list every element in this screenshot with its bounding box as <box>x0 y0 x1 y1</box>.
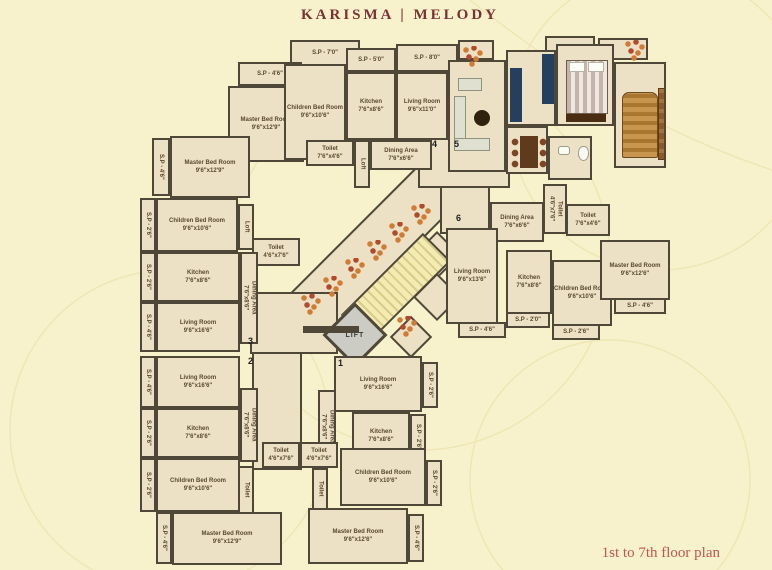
room-label: Children Bed Room <box>170 478 226 485</box>
dining-table <box>520 136 538 168</box>
room-dims: 7'6"x8'6" <box>516 283 541 290</box>
room-dining-top: Dining Area 7'6"x6'6" <box>370 140 432 170</box>
sp-label: S.P - 4'6" <box>627 303 653 309</box>
room-dims: 9'6"x11'0" <box>408 107 436 114</box>
room-kitchen-flat3: Kitchen 7'6"x8'6" <box>156 252 240 302</box>
room-toilet-flat6-a: Toilet 4'6"x7'6" <box>543 184 567 234</box>
sp-label: S.P - 4'6" <box>158 154 164 180</box>
lobby-flat6 <box>440 186 490 234</box>
room-dims: 9'6"x12'9" <box>213 539 242 546</box>
sp-label: S.P - 5'0" <box>358 57 384 63</box>
room-label: Toilet <box>268 245 284 252</box>
room-dining-showflat <box>506 126 548 174</box>
armchair <box>458 78 482 91</box>
room-living-showflat <box>448 60 506 172</box>
room-children-bed-flat2: Children Bed Room 9'6"x10'6" <box>156 458 240 512</box>
room-toilet-showflat <box>548 136 592 180</box>
room-label: Kitchen <box>360 99 382 106</box>
room-living-flat2: Living Room 9'6"x16'6" <box>156 356 240 408</box>
room-dims: 7'6"x8'6" <box>368 437 393 444</box>
room-label: Living Room <box>404 99 440 106</box>
round-table <box>474 110 490 126</box>
room-dims: 7'6"x8'6" <box>242 285 249 310</box>
room-dims: 9'6"x12'6" <box>621 271 650 278</box>
room-living-flat6: Living Room 9'6"x13'6" <box>446 228 498 324</box>
room-label: Master Bed Room <box>609 263 660 270</box>
room-living-flat3: Living Room 9'6"x16'6" <box>156 302 240 352</box>
sp-label: S.P - 2'6" <box>563 329 589 335</box>
sp-label: S.P - 4'6" <box>145 369 151 395</box>
balcony-sp: S.P - 2'6" <box>140 252 156 302</box>
flat-number-3: 3 <box>248 336 253 346</box>
sofa <box>454 138 490 151</box>
room-dims: 9'6"x10'6" <box>568 294 597 301</box>
room-dims: 7'6"x8'6" <box>185 434 210 441</box>
room-living-flat1: Living Room 9'6"x16'6" <box>334 356 422 412</box>
room-dims: 9'6"x12'9" <box>196 168 225 175</box>
balcony-sp: S.P - 4'6" <box>152 138 170 196</box>
room-label: Master Bed Room <box>201 531 252 538</box>
room-dims: 4'6"x7'6" <box>268 456 293 463</box>
flower-decor <box>322 276 344 298</box>
room-label: Living Room <box>180 320 216 327</box>
flat-number-1: 1 <box>338 358 343 368</box>
floor-plan-caption: 1st to 7th floor plan <box>602 545 720 562</box>
flower-decor <box>366 240 388 262</box>
wardrobe <box>658 88 666 160</box>
room-kitchen-top: Kitchen 7'6"x8'6" <box>346 72 396 140</box>
room-label: Kitchen <box>187 270 209 277</box>
room-toilet-flat2-a: Toilet 4'6"x7'6" <box>262 442 300 468</box>
room-dims: 7'6"x6'6" <box>504 223 529 230</box>
flat-number-2: 2 <box>248 356 253 366</box>
flower-decor <box>300 294 322 316</box>
balcony-sp: S.P - 2'6" <box>426 460 442 506</box>
balcony-sp: S.P - 4'6" <box>140 302 156 352</box>
room-label: Dining Area <box>328 410 335 443</box>
room-label: Dining Area <box>500 215 533 222</box>
balcony-sp: S.P - 2'0" <box>506 312 550 328</box>
room-label: Living Room <box>180 375 216 382</box>
sp-label: S.P - 2'6" <box>145 264 151 290</box>
room-dining-flat2: Dining Area 7'6"x8'6" <box>240 388 258 462</box>
kitchen-counter <box>542 54 554 104</box>
room-label: Toilet <box>311 448 327 455</box>
room-label: Toilet <box>273 448 289 455</box>
room-dims: 4'6"x7'6" <box>306 456 331 463</box>
sp-label: S.P - 2'6" <box>427 372 433 398</box>
room-label: Toilet <box>322 146 338 153</box>
room-kitchen-flat6: Kitchen 7'6"x8'6" <box>506 250 552 314</box>
flower-decor <box>396 316 418 338</box>
sp-label: S.P - 4'6" <box>413 525 419 551</box>
room-bedroom-showflat <box>556 44 614 126</box>
balcony-sp: S.P - 2'6" <box>140 458 156 512</box>
balcony-sp: S.P - 5'0" <box>346 48 396 72</box>
sp-label: S.P - 2'6" <box>145 212 151 238</box>
room-children-bed-flat3: Children Bed Room 9'6"x10'6" <box>156 198 238 252</box>
room-label: Master Bed Room <box>332 529 383 536</box>
room-children-bed-flat1: Children Bed Room 9'6"x10'6" <box>340 448 426 506</box>
room-label: Kitchen <box>370 429 392 436</box>
room-label: Children Bed Room <box>169 218 225 225</box>
wooden-bed <box>622 92 658 158</box>
room-dims: 9'6"x13'6" <box>458 277 487 284</box>
room-living-top: Living Room 9'6"x11'0" <box>396 72 448 140</box>
room-dims: 9'6"x10'6" <box>183 226 212 233</box>
flower-decor <box>410 204 432 226</box>
room-toilet-flat1-a: Toilet 4'6"x7'6" <box>300 442 338 468</box>
room-label: Kitchen <box>187 426 209 433</box>
room-toilet-flat2-b: Toilet <box>238 466 254 514</box>
room-label: Dining Area <box>384 148 417 155</box>
room-dims: 7'6"x4'6" <box>317 154 342 161</box>
room-dims: 4'6"x7'6" <box>263 253 288 260</box>
room-kitchen-showflat <box>506 50 556 126</box>
balcony-sp: S.P - 4'6" <box>458 322 506 338</box>
bed-footboard <box>566 114 606 122</box>
room-loft-top: Loft <box>354 140 370 188</box>
room-label: Children Bed Room <box>287 105 343 112</box>
balcony-sp: S.P - 2'6" <box>422 362 438 408</box>
room-label: Toilet <box>580 213 596 220</box>
flat-number-4: 4 <box>432 139 437 149</box>
room-dims: 4'6"x7'6" <box>548 196 555 221</box>
balcony-sp: S.P - 2'6" <box>552 324 600 340</box>
room-dims: 9'6"x12'6" <box>344 537 373 544</box>
pillow <box>569 62 585 72</box>
room-master-bed-flat6: Master Bed Room 9'6"x12'6" <box>600 240 670 300</box>
sp-label: S.P - 2'6" <box>415 424 421 450</box>
kitchen-counter <box>510 68 522 122</box>
room-dims: 7'6"x8'6" <box>242 412 249 437</box>
balcony-sp: S.P - 4'6" <box>408 514 424 562</box>
sink-fixture <box>558 146 570 155</box>
room-dining-flat3: Dining Area 7'6"x8'6" <box>240 252 258 344</box>
room-label: Loft <box>243 221 250 232</box>
room-dims: 9'6"x12'9" <box>252 125 281 132</box>
sp-label: S.P - 2'6" <box>431 470 437 496</box>
room-label: Kitchen <box>518 275 540 282</box>
lobby-left-wing <box>250 292 338 354</box>
room-label: Toilet <box>317 481 324 497</box>
flower-decor <box>388 222 410 244</box>
sp-label: S.P - 4'6" <box>161 525 167 551</box>
sofa <box>454 96 466 144</box>
sp-label: S.P - 2'6" <box>145 420 151 446</box>
balcony-sp: S.P - 4'6" <box>614 298 666 314</box>
pillow <box>588 62 604 72</box>
room-master-bed-flat3: Master Bed Room 9'6"x12'9" <box>170 136 250 198</box>
sp-label: S.P - 4'6" <box>145 314 151 340</box>
room-toilet-flat6-b: Toilet 7'6"x4'6" <box>566 204 610 236</box>
entrance-threshold <box>303 326 359 333</box>
room-bedroom2-showflat <box>614 62 666 168</box>
room-master-bed-flat2: Master Bed Room 9'6"x12'9" <box>172 512 282 565</box>
room-toilet-flat3: Toilet 4'6"x7'6" <box>252 238 300 266</box>
balcony-sp: S.P - 2'6" <box>140 408 156 458</box>
room-dims: 7'6"x8'6" <box>185 278 210 285</box>
flower-decor <box>344 258 366 280</box>
flat-number-5: 5 <box>454 139 459 149</box>
room-kitchen-flat2: Kitchen 7'6"x8'6" <box>156 408 240 458</box>
flower-decor <box>462 46 484 68</box>
balcony-sp: S.P - 2'6" <box>140 198 156 252</box>
room-label: Dining Area <box>250 408 257 441</box>
balcony-sp: S.P - 4'6" <box>156 512 172 564</box>
room-toilet-top: Toilet 7'6"x4'6" <box>306 140 354 166</box>
room-dims: 9'6"x16'6" <box>364 385 393 392</box>
room-label: Dining Area <box>250 281 257 314</box>
room-toilet-flat1-b: Toilet <box>312 468 328 510</box>
room-label: Toilet <box>556 201 563 217</box>
room-label: Toilet <box>243 482 250 498</box>
room-label: Master Bed Room <box>184 160 235 167</box>
flower-decor <box>624 40 646 62</box>
room-dims: 7'6"x8'6" <box>358 107 383 114</box>
room-dims: 9'6"x10'6" <box>301 113 330 120</box>
room-label: Living Room <box>360 377 396 384</box>
room-label: Children Bed Room <box>355 470 411 477</box>
sp-label: S.P - 4'6" <box>257 71 283 77</box>
room-dining-flat6: Dining Area 7'6"x6'6" <box>490 202 544 242</box>
room-dims: 9'6"x16'6" <box>184 328 213 335</box>
sp-label: S.P - 2'0" <box>515 317 541 323</box>
room-dims: 9'6"x10'6" <box>369 478 398 485</box>
room-dims: 7'6"x6'6" <box>388 156 413 163</box>
room-dims: 7'6"x4'6" <box>575 221 600 228</box>
flat-number-6: 6 <box>456 213 461 223</box>
room-dims: 9'6"x16'6" <box>184 383 213 390</box>
sp-label: S.P - 4'6" <box>469 327 495 333</box>
room-label: Living Room <box>454 269 490 276</box>
room-dims: 7'6"x8'6" <box>320 414 327 439</box>
sp-label: S.P - 2'6" <box>145 472 151 498</box>
room-dims: 9'6"x10'6" <box>184 486 213 493</box>
sp-label: S.P - 7'0" <box>312 50 338 56</box>
balcony-sp: S.P - 4'6" <box>140 356 156 408</box>
room-master-bed-flat1: Master Bed Room 9'6"x12'6" <box>308 508 408 564</box>
room-label: Loft <box>359 158 366 169</box>
wc-fixture <box>578 146 589 161</box>
sp-label: S.P - 8'0" <box>414 55 440 61</box>
page-title: KARISMA | MELODY <box>30 7 770 24</box>
